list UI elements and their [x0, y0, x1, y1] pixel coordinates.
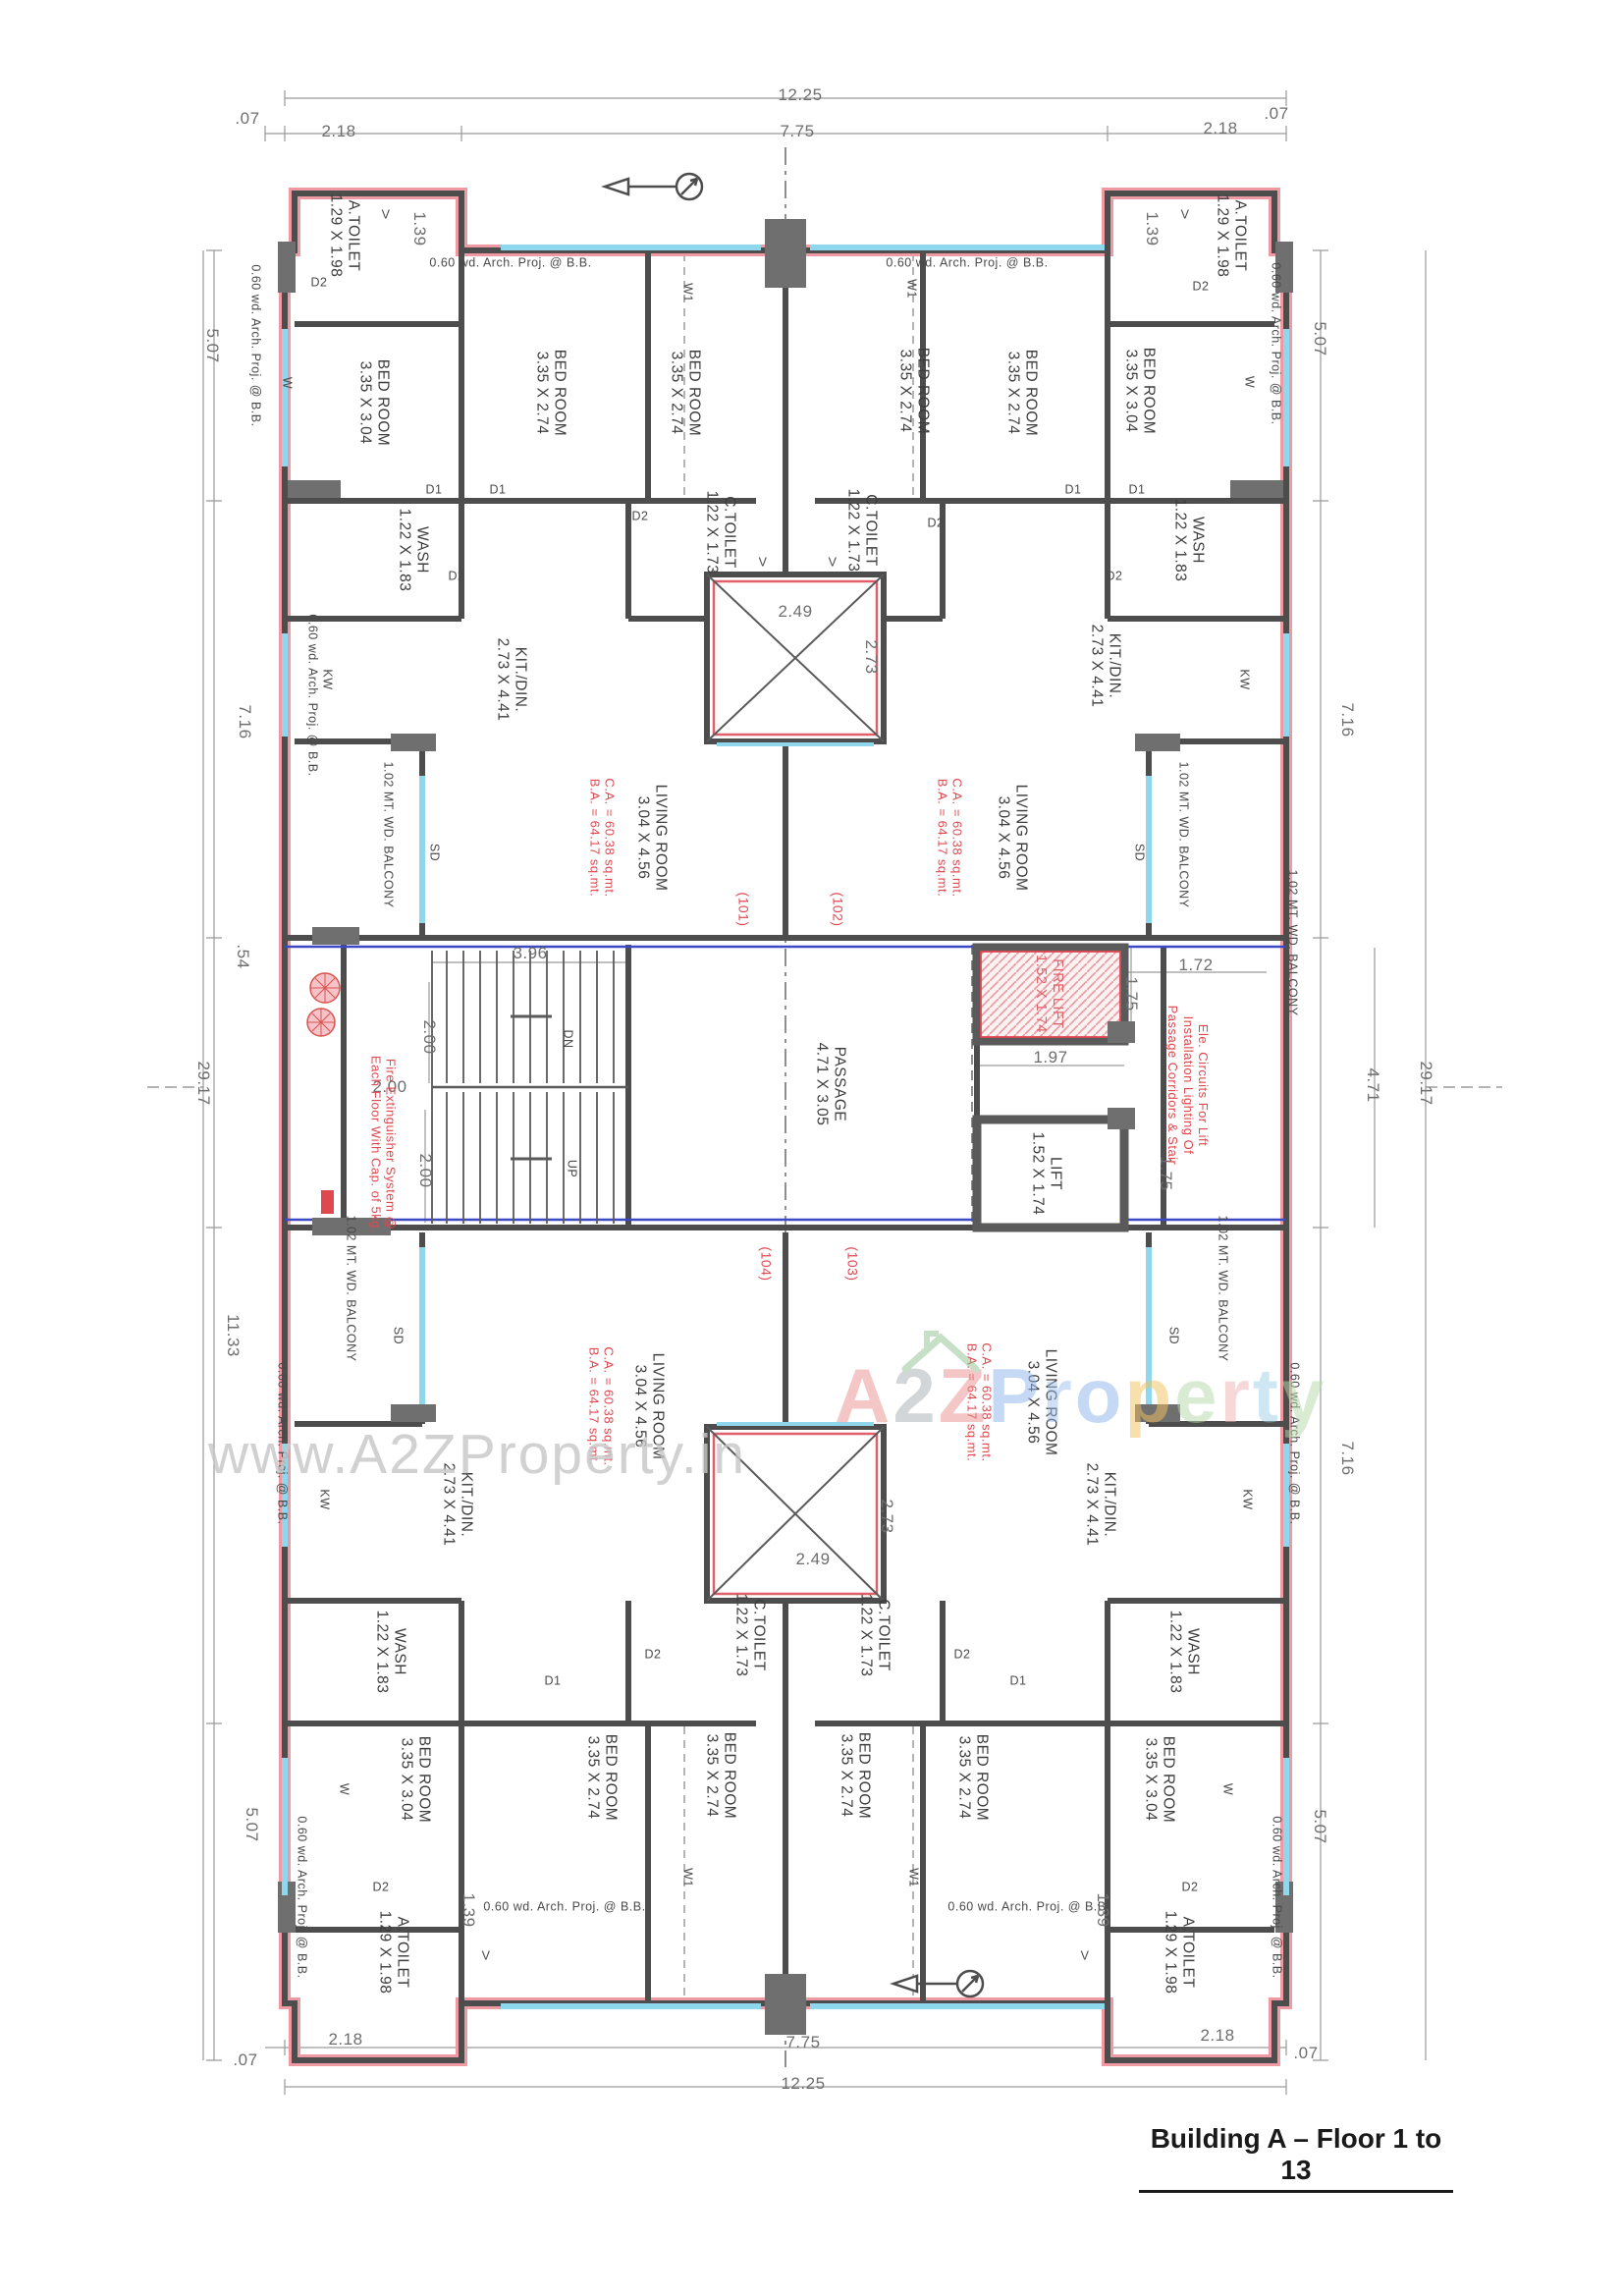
plan-label: 5.07	[242, 1807, 261, 1841]
plan-label: 7.75	[780, 122, 814, 141]
plan-label: BED ROOM 3.35 X 2.74	[837, 1732, 873, 1819]
plan-label: SD	[391, 1327, 406, 1344]
watermark-gray: www.A2ZProperty.in	[208, 1422, 746, 1487]
watermark-letter: A	[835, 1351, 893, 1441]
plan-label: WASH 1.22 X 1.83	[372, 1611, 408, 1694]
plan-label: W	[1220, 1783, 1235, 1795]
plan-label: Fire Extinguisher System @ Each Floor Wi…	[368, 1056, 399, 1232]
plan-label: BED ROOM 3.35 X 3.04	[1141, 1736, 1177, 1823]
plan-label: 1.39	[1093, 1892, 1112, 1927]
plan-label: BED ROOM 3.35 X 2.74	[954, 1734, 991, 1821]
plan-label: KW	[1237, 669, 1252, 689]
floorplan-canvas: 12.25.072.187.752.18.072.187.752.18.07.0…	[0, 0, 1623, 2296]
plan-label: A.TOILET 1.29 X 1.98	[1161, 1911, 1197, 1995]
plan-label: BED ROOM 3.35 X 2.74	[702, 1732, 738, 1819]
plan-label: 2.18	[328, 2030, 362, 2050]
plan-label: 1.39	[1142, 211, 1162, 246]
plan-label: D2	[449, 570, 465, 584]
plan-label: W	[280, 377, 295, 389]
plan-label: W1	[906, 1868, 921, 1887]
plan-label: V	[1081, 1949, 1090, 1964]
plan-label: .07	[1264, 104, 1288, 124]
plan-label: 0.60 wd. Arch. Proj. @ B.B.	[429, 256, 591, 271]
plan-label: D1	[1129, 483, 1146, 498]
plan-label: KIT./DIN. 2.73 X 4.41	[1087, 625, 1123, 708]
plan-label: 2.00	[419, 1019, 439, 1054]
plan-label: KW	[1240, 1489, 1255, 1509]
plan-label: 1.97	[1033, 1048, 1067, 1067]
plan-label: A.TOILET 1.29 X 1.98	[1213, 194, 1249, 278]
plan-label: (101)	[735, 892, 752, 926]
plan-label: 7.16	[1337, 1441, 1357, 1475]
plan-label: BED ROOM 3.35 X 2.74	[667, 350, 703, 436]
plan-label: 1.02 MT. WD. BALCONY	[1216, 1216, 1230, 1362]
plan-label: W	[1242, 376, 1257, 388]
plan-label: 2.73	[861, 639, 881, 674]
plan-label: Ele. Circuits For Lift Installation Ligh…	[1165, 1006, 1211, 1166]
plan-label: 1.75	[1121, 976, 1141, 1011]
plan-label: 2.18	[321, 122, 355, 141]
plan-labels-layer: 12.25.072.187.752.18.072.187.752.18.07.0…	[0, 0, 1623, 2296]
plan-label: DN	[561, 1029, 575, 1048]
plan-label: 0.60 wd. Arch. Proj. @ B.B.	[483, 1900, 645, 1915]
watermark-letter: y	[1281, 1351, 1326, 1441]
plan-label: 2.00	[415, 1153, 435, 1187]
plan-label: FIRE LIFT 1.52 X 1.74	[1032, 955, 1065, 1033]
plan-label: C.TOILET 1.22 X 1.73	[702, 491, 738, 574]
plan-label: V	[482, 1949, 491, 1964]
plan-label: (102)	[830, 892, 846, 926]
plan-label: V	[829, 556, 838, 571]
plan-label: UP	[565, 1160, 579, 1177]
plan-label: D2	[1193, 280, 1210, 295]
plan-label: 7.16	[1337, 702, 1357, 737]
plan-label: 29.17	[193, 1061, 213, 1105]
watermark-letter: e	[1174, 1351, 1219, 1441]
plan-label: D2	[928, 517, 945, 531]
watermark-letter: o	[1075, 1351, 1125, 1441]
plan-label: WASH 1.22 X 1.83	[1170, 499, 1207, 582]
plan-label: C.TOILET 1.22 X 1.73	[731, 1594, 768, 1677]
plan-label: D2	[373, 1881, 390, 1895]
plan-label: BED ROOM 3.35 X 2.74	[583, 1734, 620, 1821]
plan-label: 1.02 MT. WD. BALCONY	[1176, 762, 1191, 908]
plan-label: SD	[427, 844, 442, 861]
plan-label: 0.60 wd. Arch. Proj. @ B.B.	[305, 614, 320, 776]
plan-label: WASH 1.22 X 1.83	[1165, 1611, 1202, 1694]
plan-label: 2.49	[778, 602, 812, 622]
plan-label: 29.17	[1416, 1061, 1435, 1105]
plan-label: 2.18	[1203, 119, 1237, 138]
plan-label: W1	[680, 1868, 695, 1887]
plan-label: 0.60 wd. Arch. Proj. @ B.B.	[295, 1816, 309, 1978]
watermark-letter: r	[1042, 1351, 1074, 1441]
plan-label: C.TOILET 1.22 X 1.73	[843, 489, 880, 573]
plan-label: (103)	[844, 1246, 861, 1281]
plan-label: LIFT 1.52 X 1.74	[1028, 1132, 1064, 1216]
plan-label: C.A. = 60.38 sq.mt. B.A. = 64.17 sq.mt.	[935, 778, 965, 897]
plan-label: BED ROOM 3.35 X 2.74	[532, 350, 568, 436]
plan-label: 1.39	[409, 211, 429, 246]
watermark-letter: P	[988, 1351, 1042, 1441]
plan-label: A.TOILET 1.29 X 1.98	[375, 1911, 411, 1995]
plan-label: 5.07	[1310, 321, 1329, 355]
watermark-house-icon	[899, 1326, 982, 1373]
plan-label: 1.72	[1178, 956, 1213, 975]
plan-label: LIVING ROOM 3.04 X 4.56	[633, 785, 670, 892]
plan-label: KW	[320, 669, 335, 689]
plan-label: D2	[954, 1648, 971, 1663]
plan-label: 2.73	[877, 1499, 896, 1533]
plan-label: 0.60 wd. Arch. Proj. @ B.B.	[248, 264, 263, 426]
plan-label: D2	[645, 1648, 662, 1663]
plan-label: (104)	[758, 1246, 775, 1281]
plan-label: D1	[545, 1674, 562, 1689]
plan-label: D1	[490, 483, 507, 498]
plan-label: 5.07	[202, 328, 222, 362]
plan-label: W1	[680, 283, 695, 302]
plan-label: BED ROOM 3.35 X 2.74	[1003, 350, 1040, 436]
plan-label: D2	[1107, 570, 1123, 584]
plan-label: SD	[1166, 1327, 1181, 1344]
watermark-letter: p	[1124, 1351, 1174, 1441]
plan-label: D1	[426, 483, 443, 498]
plan-label: .54	[233, 944, 252, 968]
plan-label: D2	[632, 510, 649, 524]
plan-label: 12.25	[778, 85, 822, 105]
plan-label: 7.75	[785, 2033, 820, 2052]
plan-label: .07	[233, 2050, 257, 2070]
plan-label: PASSAGE 4.71 X 3.05	[812, 1043, 848, 1126]
plan-label: BED ROOM 3.35 X 3.04	[1121, 348, 1158, 434]
plan-label: 0.60 wd. Arch. Proj. @ B.B.	[886, 256, 1048, 271]
plan-label: D2	[1182, 1881, 1199, 1895]
plan-label: .07	[1293, 2044, 1318, 2063]
plan-label: 5.07	[1310, 1809, 1329, 1843]
plan-label: 1.02 MT. WD. BALCONY	[1285, 870, 1300, 1016]
plan-label: WASH 1.22 X 1.83	[395, 509, 431, 592]
plan-label: KW	[317, 1489, 332, 1509]
plan-label: KIT./DIN. 2.73 X 4.41	[493, 638, 529, 722]
watermark-colored: A2Z Property	[835, 1351, 1326, 1441]
plan-label: 7.16	[235, 704, 254, 738]
plan-label: W1	[904, 279, 919, 299]
plan-label: 12.25	[781, 2074, 825, 2094]
plan-label: 11.33	[223, 1314, 243, 1357]
plan-label: 0.60 wd. Arch. Proj. @ B.B.	[1270, 1816, 1284, 1978]
watermark-letter: r	[1219, 1351, 1252, 1441]
plan-label: BED ROOM 3.35 X 2.74	[895, 348, 932, 434]
plan-label: W	[337, 1783, 352, 1795]
plan-label: BED ROOM 3.35 X 3.04	[397, 1736, 433, 1823]
plan-label: SD	[1132, 844, 1147, 861]
plan-label: 2.18	[1200, 2026, 1234, 2046]
plan-label: 2.49	[795, 1550, 830, 1569]
watermark-letter: t	[1253, 1351, 1281, 1441]
plan-label: LIVING ROOM 3.04 X 4.56	[994, 785, 1030, 892]
plan-label: 1.02 MT. WD. BALCONY	[344, 1216, 358, 1362]
plan-label: C.A. = 60.38 sq.mt. B.A. = 64.17 sq.mt.	[587, 778, 618, 897]
plan-label: A.TOILET 1.29 X 1.98	[326, 194, 362, 278]
plan-label: D1	[1010, 1674, 1027, 1689]
plan-label: D1	[1065, 483, 1082, 498]
plan-label: C.TOILET 1.22 X 1.73	[856, 1594, 893, 1677]
plan-label: 1.39	[459, 1892, 478, 1927]
plan-label: .07	[235, 109, 259, 129]
plan-label: 3.96	[513, 944, 547, 963]
plan-label: 4.71	[1363, 1067, 1382, 1102]
plan-label: BED ROOM 3.35 X 3.04	[355, 359, 392, 446]
plan-label: V	[1181, 208, 1190, 223]
plan-label: D2	[311, 276, 328, 291]
plan-label: V	[382, 208, 391, 223]
plan-label: 0.60 wd. Arch. Proj. @ B.B.	[1269, 262, 1283, 424]
plan-label: V	[759, 556, 768, 571]
plan-label: 1.02 MT. WD. BALCONY	[381, 762, 396, 908]
plan-label: 0.60 wd. Arch. Proj. @ B.B.	[947, 1900, 1109, 1915]
plan-label: KIT./DIN. 2.73 X 4.41	[1082, 1463, 1118, 1547]
